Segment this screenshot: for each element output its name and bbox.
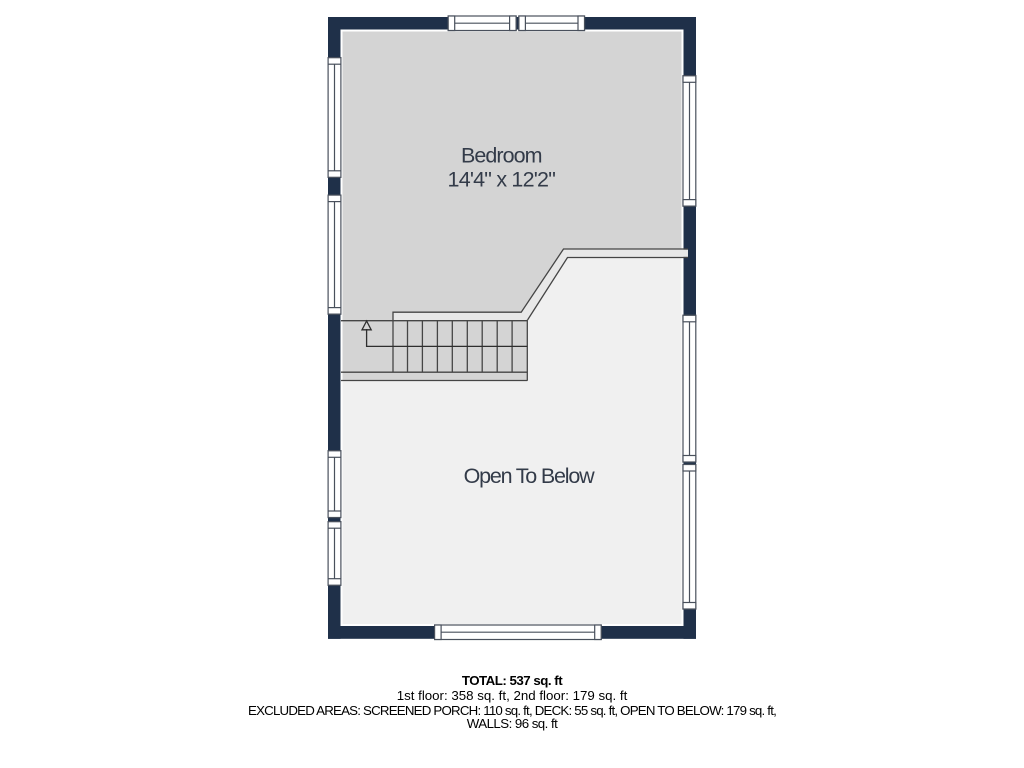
svg-text:Bedroom: Bedroom — [461, 144, 542, 168]
svg-text:14'4" x 12'2": 14'4" x 12'2" — [448, 167, 556, 191]
svg-text:Open To Below: Open To Below — [464, 464, 595, 488]
